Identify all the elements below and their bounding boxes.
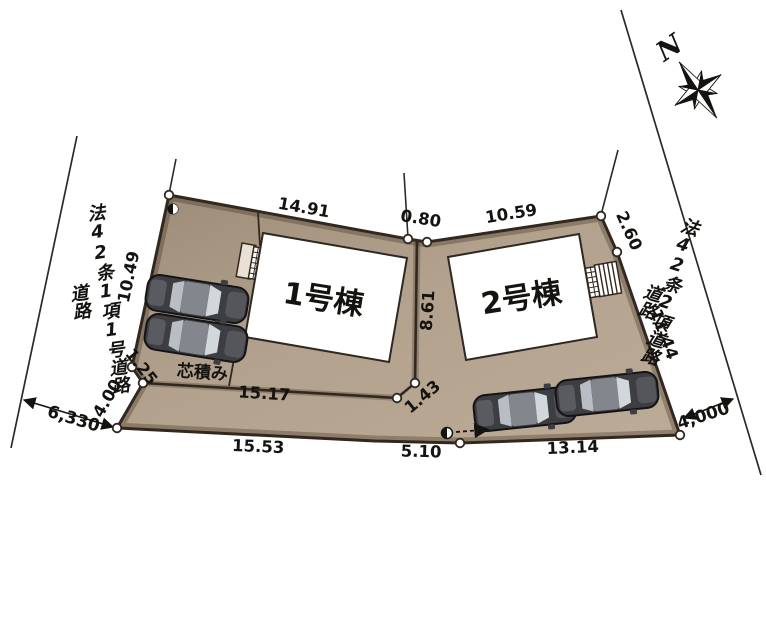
lot2-entrance-steps	[594, 261, 621, 296]
boundary-extension-topleft	[169, 159, 176, 194]
boundary-extension-topright	[601, 150, 618, 215]
vertex-right-upper	[613, 248, 622, 257]
site-plan-drawing: 1号棟 2号棟 14.91 0.80 10.59 2.60 11.44 10.4…	[0, 0, 766, 622]
dim-divider-vertical: 8.61	[417, 290, 439, 332]
dim-bottom-right: 13.14	[546, 437, 599, 458]
vertex-top-right	[597, 212, 606, 221]
dim-bottom-left: 15.53	[232, 436, 285, 457]
vertex-divider-upper	[411, 379, 420, 388]
dim-right-upper: 2.60	[612, 208, 646, 253]
dim-divider-bottom: 15.17	[238, 382, 291, 404]
vertex-gap-left	[404, 235, 413, 244]
compass-north-label: N	[650, 28, 690, 69]
wall-note: 芯積み	[176, 360, 228, 385]
dim-top-gap: 0.80	[399, 206, 442, 231]
vertex-divider-lower	[393, 394, 402, 403]
dim-right-road-width: 4,000	[675, 398, 732, 434]
survey-marker	[168, 204, 178, 214]
dim-bottom-center: 5.10	[401, 441, 442, 461]
vertex-bottom-left	[113, 424, 122, 433]
site-plan: 1号棟 2号棟 14.91 0.80 10.59 2.60 11.44 10.4…	[0, 0, 766, 622]
vertex-gap-right	[423, 238, 432, 247]
dim-left-upper: 10.49	[114, 249, 143, 304]
vertex-top-left	[165, 191, 174, 200]
left-road-area-label: 道路	[66, 283, 92, 322]
dim-lot2-top: 10.59	[484, 200, 539, 227]
vertex-bottom-center	[456, 439, 465, 448]
